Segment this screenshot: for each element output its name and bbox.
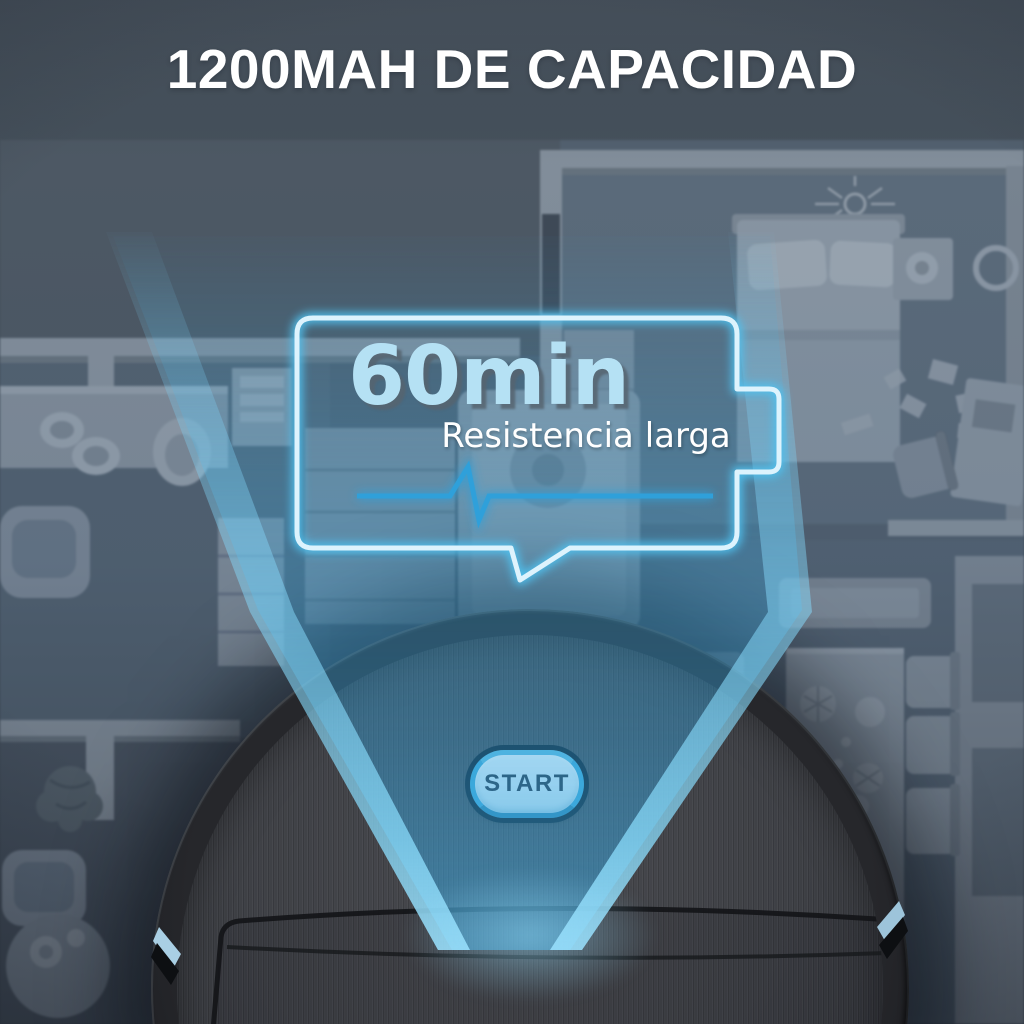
armchair — [0, 506, 90, 598]
towel-shelf — [232, 368, 292, 446]
bumper-notch-left — [151, 927, 181, 985]
robot-vacuum: START — [151, 609, 909, 1024]
start-button-label: START — [484, 770, 570, 798]
nightstand — [893, 238, 953, 300]
duration-subtitle: Resistencia larga — [436, 419, 736, 453]
bumper-notch-right — [877, 901, 908, 959]
duration-text: 60min — [348, 336, 629, 418]
start-button: START — [470, 750, 584, 818]
product-marketing-image: START 60min Resistencia larga 1200MAH DE… — [0, 0, 1024, 1024]
bed — [732, 214, 905, 462]
lounge-armchair — [2, 850, 86, 926]
round-table — [6, 914, 110, 1018]
page-title: 1200MAH DE CAPACIDAD — [0, 42, 1024, 97]
chest-of-drawers — [305, 428, 455, 624]
toilet — [153, 398, 211, 486]
